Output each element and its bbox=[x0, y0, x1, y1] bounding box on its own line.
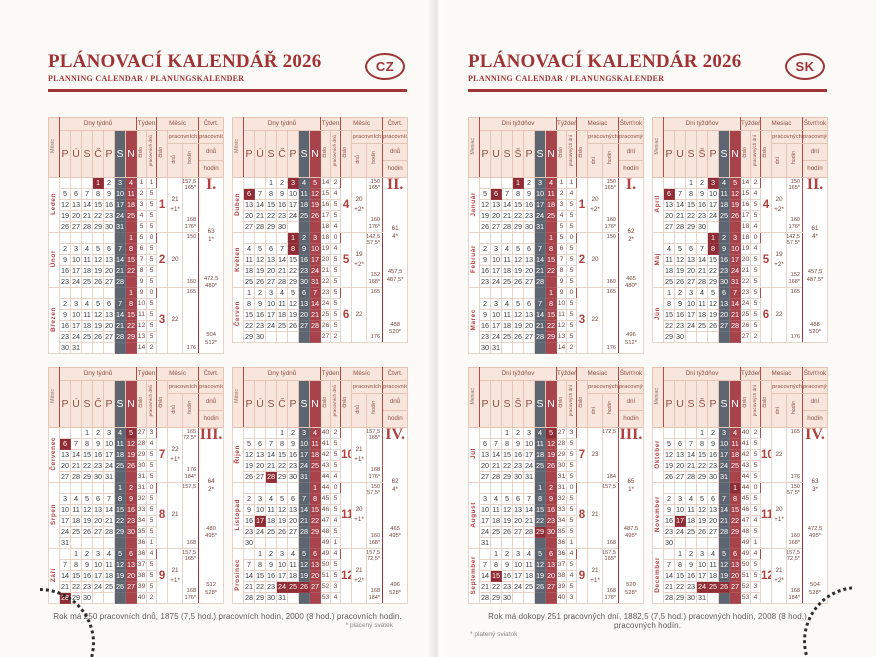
month-workdays: 21+1* bbox=[168, 548, 183, 603]
day-cell bbox=[104, 537, 115, 548]
day-cell bbox=[502, 342, 513, 353]
week-number: 47 bbox=[741, 515, 751, 526]
day-cell: 3 bbox=[491, 298, 502, 309]
day-cell bbox=[730, 221, 741, 232]
day-cell: 31 bbox=[535, 221, 546, 232]
day-letter-5: S bbox=[719, 130, 730, 177]
month-workdays: 21+1* bbox=[588, 548, 603, 603]
day-cell: 27 bbox=[93, 526, 104, 537]
day-cell: 14 bbox=[115, 309, 126, 320]
day-cell: 29 bbox=[491, 592, 502, 603]
day-cell bbox=[288, 331, 299, 342]
week-workdays: 5 bbox=[567, 471, 577, 482]
day-cell: 9 bbox=[502, 559, 513, 570]
month-number-label: číslo bbox=[577, 130, 588, 177]
quarter-days-label: dnů bbox=[383, 393, 408, 410]
day-cell bbox=[524, 287, 535, 298]
day-letter-2: S bbox=[82, 130, 93, 177]
day-cell bbox=[82, 177, 93, 188]
quarter-label: IV. bbox=[803, 430, 827, 440]
day-cell: 17 bbox=[71, 265, 82, 276]
day-cell: 12 bbox=[730, 188, 741, 199]
week-workdays: 1 bbox=[567, 177, 577, 188]
week-workdays: 5 bbox=[331, 559, 341, 570]
month-number: 3 bbox=[577, 287, 588, 353]
week-workdays: 1 bbox=[147, 177, 157, 188]
day-cell: 21 bbox=[675, 210, 686, 221]
week-workdays: 5 bbox=[567, 493, 577, 504]
day-cell: 5 bbox=[546, 427, 557, 438]
day-cell: 22 bbox=[255, 581, 266, 592]
day-cell: 16 bbox=[60, 320, 71, 331]
week-workdays-label: pracovných dní bbox=[567, 130, 577, 177]
day-cell: 17 bbox=[491, 265, 502, 276]
day-cell: 18 bbox=[491, 515, 502, 526]
day-cell: 5 bbox=[244, 438, 255, 449]
day-cell: 20 bbox=[675, 460, 686, 471]
day-cell: 3 bbox=[535, 177, 546, 188]
quarter-hours-8: 504512* bbox=[199, 332, 223, 347]
month-name: November bbox=[653, 482, 664, 548]
day-cell: 30 bbox=[93, 471, 104, 482]
day-cell: 25 bbox=[719, 210, 730, 221]
week-workdays: 5 bbox=[751, 504, 761, 515]
quarter-label: II. bbox=[803, 180, 827, 190]
day-cell: 2 bbox=[60, 298, 71, 309]
day-cell: 15 bbox=[535, 504, 546, 515]
month-header: Měsíc bbox=[341, 367, 383, 380]
day-cell: 12 bbox=[82, 504, 93, 515]
week-number: 40 bbox=[741, 427, 751, 438]
month-days-label: dnů bbox=[352, 143, 367, 177]
day-cell: 2 bbox=[719, 232, 730, 243]
day-cell: 17 bbox=[719, 449, 730, 460]
day-cell: 12 bbox=[115, 559, 126, 570]
day-cell: 23 bbox=[104, 210, 115, 221]
day-cell: 21 bbox=[719, 515, 730, 526]
day-cell: 13 bbox=[480, 449, 491, 460]
day-letter-6: N bbox=[730, 380, 741, 427]
month-workdays: 20+1* bbox=[352, 482, 367, 548]
month-hours: 157,5165*168176* bbox=[367, 427, 383, 482]
day-cell: 23 bbox=[266, 581, 277, 592]
day-cell: 14 bbox=[480, 570, 491, 581]
day-cell bbox=[255, 177, 266, 188]
month-workdays: 22 bbox=[352, 287, 367, 342]
day-cell: 9 bbox=[244, 504, 255, 515]
week-workdays: 5 bbox=[331, 298, 341, 309]
quarter-working-label: pracovních bbox=[383, 380, 408, 393]
day-cell: 2 bbox=[675, 287, 686, 298]
day-cell: 24 bbox=[491, 276, 502, 287]
day-cell: 7 bbox=[697, 243, 708, 254]
day-cell bbox=[480, 482, 491, 493]
week-workdays: 5 bbox=[147, 504, 157, 515]
day-cell: 26 bbox=[126, 460, 137, 471]
day-cell: 9 bbox=[708, 438, 719, 449]
week-number: 26 bbox=[321, 320, 331, 331]
day-cell: 6 bbox=[266, 243, 277, 254]
week-workdays-label: pracovných dní bbox=[751, 130, 761, 177]
week-workdays: 5 bbox=[751, 276, 761, 287]
week-workdays: 5 bbox=[147, 515, 157, 526]
day-cell: 21 bbox=[266, 460, 277, 471]
week-number: 49 bbox=[741, 548, 751, 559]
week-number: 35 bbox=[557, 526, 567, 537]
day-cell: 24 bbox=[310, 265, 321, 276]
day-cell: 2 bbox=[686, 548, 697, 559]
day-letter-4: P bbox=[104, 130, 115, 177]
day-cell: 7 bbox=[491, 438, 502, 449]
week-workdays: 5 bbox=[751, 298, 761, 309]
quarter-hours-8: 496528* bbox=[383, 582, 407, 597]
day-cell bbox=[299, 482, 310, 493]
day-cell: 27 bbox=[71, 221, 82, 232]
day-cell: 29 bbox=[115, 526, 126, 537]
week-number: 32 bbox=[137, 493, 147, 504]
day-cell: 17 bbox=[675, 515, 686, 526]
day-cell: 26 bbox=[502, 526, 513, 537]
day-cell: 26 bbox=[535, 581, 546, 592]
month-number: 1 bbox=[577, 177, 588, 232]
week-workdays: 2 bbox=[331, 331, 341, 342]
week-workdays: 4 bbox=[751, 515, 761, 526]
week-workdays: 4 bbox=[147, 548, 157, 559]
week-workdays: 5 bbox=[751, 471, 761, 482]
week-number: 14 bbox=[557, 342, 567, 353]
day-cell: 9 bbox=[664, 504, 675, 515]
day-cell bbox=[535, 287, 546, 298]
day-cell: 31 bbox=[524, 471, 535, 482]
day-cell: 8 bbox=[93, 188, 104, 199]
day-cell: 11 bbox=[299, 188, 310, 199]
quarter-summary: I.631*472,5480*504512* bbox=[199, 177, 224, 353]
day-cell: 18 bbox=[82, 320, 93, 331]
day-cell: 18 bbox=[104, 570, 115, 581]
day-cell: 15 bbox=[288, 254, 299, 265]
day-cell: 24 bbox=[115, 210, 126, 221]
day-cell: 24 bbox=[277, 581, 288, 592]
day-cell: 3 bbox=[71, 243, 82, 254]
day-cell: 1 bbox=[277, 427, 288, 438]
week-number: 5 bbox=[557, 232, 567, 243]
week-workdays: 5 bbox=[147, 276, 157, 287]
day-cell: 19 bbox=[730, 199, 741, 210]
day-cell: 17 bbox=[266, 309, 277, 320]
day-cell: 13 bbox=[71, 199, 82, 210]
country-badge-cz: CZ bbox=[365, 53, 405, 80]
month-number: 8 bbox=[577, 482, 588, 548]
weekdays-header: Dny týdnů bbox=[244, 367, 321, 380]
day-cell bbox=[719, 331, 730, 342]
day-cell: 6 bbox=[730, 548, 741, 559]
week-workdays: 4 bbox=[751, 243, 761, 254]
week-number: 22 bbox=[321, 276, 331, 287]
day-cell bbox=[299, 592, 310, 603]
day-cell: 20 bbox=[546, 570, 557, 581]
day-cell: 22 bbox=[502, 460, 513, 471]
day-cell: 25 bbox=[82, 276, 93, 287]
title-block: PLÁNOVACÍ KALENDÁR 2026 PLANNING CALENDA… bbox=[468, 52, 827, 84]
month-name: September bbox=[469, 548, 480, 603]
day-cell: 13 bbox=[299, 298, 310, 309]
day-cell: 15 bbox=[546, 309, 557, 320]
week-number: 45 bbox=[741, 493, 751, 504]
month-workdays: 23 bbox=[588, 427, 603, 482]
day-letter-1: U bbox=[491, 380, 502, 427]
day-letter-5: S bbox=[719, 380, 730, 427]
day-cell: 25 bbox=[82, 331, 93, 342]
day-cell: 8 bbox=[115, 493, 126, 504]
week-number: 31 bbox=[557, 471, 567, 482]
week-number: 39 bbox=[557, 581, 567, 592]
day-cell: 6 bbox=[524, 298, 535, 309]
day-cell: 30 bbox=[277, 221, 288, 232]
week-workdays: 3 bbox=[147, 427, 157, 438]
week-number-label: číslo bbox=[137, 380, 147, 427]
weekdays-header: Dny týdnů bbox=[60, 367, 137, 380]
month-hours: 150157,5*160168* bbox=[787, 482, 803, 548]
week-header: Týden bbox=[137, 117, 157, 130]
day-cell: 20 bbox=[491, 210, 502, 221]
week-number: 18 bbox=[741, 221, 751, 232]
day-cell: 18 bbox=[502, 320, 513, 331]
day-cell bbox=[277, 232, 288, 243]
day-cell: 18 bbox=[115, 449, 126, 460]
week-workdays: 5 bbox=[567, 210, 577, 221]
week-workdays: 5 bbox=[147, 526, 157, 537]
day-cell: 24 bbox=[299, 460, 310, 471]
day-cell: 13 bbox=[104, 309, 115, 320]
footer-note: * platený sviatok bbox=[468, 631, 827, 638]
day-cell: 22 bbox=[310, 515, 321, 526]
day-letter-5: S bbox=[115, 130, 126, 177]
week-number: 10 bbox=[557, 298, 567, 309]
week-number: 9 bbox=[557, 287, 567, 298]
month-workdays: 20+2* bbox=[772, 177, 787, 232]
day-cell: 31 bbox=[115, 221, 126, 232]
day-cell: 11 bbox=[524, 559, 535, 570]
day-cell: 10 bbox=[535, 188, 546, 199]
week-workdays: 4 bbox=[751, 548, 761, 559]
day-cell: 20 bbox=[104, 265, 115, 276]
week-workdays: 5 bbox=[751, 287, 761, 298]
day-cell bbox=[491, 177, 502, 188]
day-letter-0: P bbox=[664, 380, 675, 427]
day-cell: 21 bbox=[491, 460, 502, 471]
day-cell: 23 bbox=[546, 515, 557, 526]
day-cell: 7 bbox=[115, 243, 126, 254]
day-cell: 13 bbox=[513, 504, 524, 515]
quarter-grid-sk: MesiacDni týždňovTýždeňMesiacŠtvrťrokPUS… bbox=[468, 117, 827, 604]
week-workdays: 5 bbox=[567, 526, 577, 537]
day-cell: 15 bbox=[82, 449, 93, 460]
day-cell: 9 bbox=[480, 254, 491, 265]
quarter-summary: IV.633*472,5495*504528* bbox=[803, 427, 828, 603]
day-cell: 6 bbox=[71, 188, 82, 199]
day-cell: 14 bbox=[60, 570, 71, 581]
day-cell: 25 bbox=[115, 460, 126, 471]
day-cell: 28 bbox=[535, 331, 546, 342]
day-cell bbox=[115, 287, 126, 298]
day-cell: 13 bbox=[244, 199, 255, 210]
day-cell: 1 bbox=[546, 232, 557, 243]
week-number: 21 bbox=[741, 265, 751, 276]
day-cell: 4 bbox=[491, 493, 502, 504]
day-cell: 4 bbox=[697, 287, 708, 298]
day-cell: 26 bbox=[82, 526, 93, 537]
week-number: 16 bbox=[321, 199, 331, 210]
day-cell: 16 bbox=[244, 515, 255, 526]
day-cell: 30 bbox=[524, 221, 535, 232]
week-number: 4 bbox=[137, 210, 147, 221]
day-cell: 26 bbox=[60, 221, 71, 232]
day-cell: 2 bbox=[255, 287, 266, 298]
day-cell: 20 bbox=[513, 515, 524, 526]
day-cell: 3 bbox=[513, 548, 524, 559]
day-cell: 7 bbox=[535, 243, 546, 254]
footer-summary: Rok má dokopy 251 pracovných dní, 1882,5… bbox=[468, 612, 827, 630]
week-number: 17 bbox=[321, 210, 331, 221]
day-cell: 7 bbox=[104, 493, 115, 504]
week-workdays: 5 bbox=[147, 570, 157, 581]
day-cell: 24 bbox=[675, 526, 686, 537]
quarter-summary: IV.624*465495*496528* bbox=[383, 427, 408, 603]
month-number-label: číslo bbox=[577, 380, 588, 427]
week-header: Týždeň bbox=[557, 367, 577, 380]
day-cell bbox=[697, 482, 708, 493]
day-cell bbox=[546, 276, 557, 287]
day-cell: 20 bbox=[244, 210, 255, 221]
day-cell: 17 bbox=[115, 199, 126, 210]
day-letter-2: S bbox=[266, 130, 277, 177]
day-cell bbox=[244, 548, 255, 559]
week-workdays: 1 bbox=[567, 537, 577, 548]
month-header: Mesiac bbox=[577, 117, 619, 130]
day-cell: 6 bbox=[546, 548, 557, 559]
day-cell: 17 bbox=[491, 320, 502, 331]
day-cell: 26 bbox=[513, 331, 524, 342]
day-cell: 17 bbox=[93, 570, 104, 581]
day-cell: 1 bbox=[255, 548, 266, 559]
day-cell: 3 bbox=[104, 427, 115, 438]
week-workdays: 5 bbox=[567, 320, 577, 331]
day-cell bbox=[104, 342, 115, 353]
week-workdays: 4 bbox=[331, 188, 341, 199]
day-cell bbox=[244, 482, 255, 493]
month-name: Prosinec bbox=[233, 548, 244, 603]
day-cell: 4 bbox=[288, 548, 299, 559]
day-cell: 1 bbox=[686, 177, 697, 188]
day-cell: 18 bbox=[708, 570, 719, 581]
day-cell: 10 bbox=[480, 504, 491, 515]
day-cell: 13 bbox=[524, 309, 535, 320]
week-number: 28 bbox=[137, 438, 147, 449]
page-sk: PLÁNOVACÍ KALENDÁR 2026 PLANNING CALENDA… bbox=[438, 0, 876, 657]
day-letter-2: S bbox=[502, 380, 513, 427]
day-cell: 15 bbox=[310, 504, 321, 515]
day-cell: 16 bbox=[524, 199, 535, 210]
quarter-table-III: MesiacDni týždňovTýždeňMesiacŠtvrťrokPUS… bbox=[468, 367, 644, 604]
day-cell: 11 bbox=[686, 504, 697, 515]
day-cell: 23 bbox=[244, 526, 255, 537]
day-cell: 25 bbox=[730, 460, 741, 471]
day-cell: 3 bbox=[480, 493, 491, 504]
week-number: 48 bbox=[321, 526, 331, 537]
month-number: 9 bbox=[577, 548, 588, 603]
day-cell: 12 bbox=[299, 559, 310, 570]
day-cell: 10 bbox=[686, 298, 697, 309]
day-cell: 28 bbox=[491, 471, 502, 482]
month-name: Január bbox=[469, 177, 480, 232]
day-cell: 1 bbox=[126, 287, 137, 298]
day-cell: 11 bbox=[104, 559, 115, 570]
day-cell: 4 bbox=[244, 243, 255, 254]
week-workdays: 5 bbox=[331, 504, 341, 515]
week-number: 14 bbox=[741, 177, 751, 188]
day-cell bbox=[491, 232, 502, 243]
day-cell: 19 bbox=[513, 265, 524, 276]
month-workdays: 22 bbox=[168, 287, 183, 353]
week-number: 49 bbox=[321, 537, 331, 548]
day-cell: 19 bbox=[299, 570, 310, 581]
day-cell bbox=[708, 537, 719, 548]
day-cell: 7 bbox=[82, 188, 93, 199]
day-cell bbox=[524, 342, 535, 353]
day-cell: 1 bbox=[126, 232, 137, 243]
month-name: Červenec bbox=[49, 427, 60, 482]
week-workdays: 5 bbox=[147, 449, 157, 460]
day-cell: 28 bbox=[502, 221, 513, 232]
day-cell: 11 bbox=[277, 298, 288, 309]
month-number: 8 bbox=[157, 482, 168, 548]
day-cell: 19 bbox=[502, 515, 513, 526]
month-hours-label: hodin bbox=[183, 143, 199, 177]
header-rule bbox=[48, 89, 407, 92]
day-cell bbox=[491, 537, 502, 548]
day-cell bbox=[535, 232, 546, 243]
month-workdays: 21 bbox=[588, 482, 603, 548]
day-cell: 23 bbox=[686, 581, 697, 592]
day-cell bbox=[82, 537, 93, 548]
month-name: Október bbox=[653, 427, 664, 482]
quarter-hours-75: 465480* bbox=[619, 276, 643, 291]
day-cell: 22 bbox=[126, 265, 137, 276]
day-cell: 8 bbox=[255, 559, 266, 570]
day-cell: 18 bbox=[277, 309, 288, 320]
day-cell: 2 bbox=[266, 548, 277, 559]
day-cell: 16 bbox=[502, 570, 513, 581]
day-cell: 4 bbox=[686, 493, 697, 504]
month-number: 3 bbox=[157, 287, 168, 353]
day-cell: 13 bbox=[126, 559, 137, 570]
day-cell: 2 bbox=[277, 177, 288, 188]
day-cell: 30 bbox=[104, 221, 115, 232]
quarter-label: II. bbox=[383, 180, 407, 190]
month-number-label: číslo bbox=[157, 130, 168, 177]
day-cell bbox=[719, 592, 730, 603]
day-cell: 18 bbox=[126, 199, 137, 210]
day-cell bbox=[115, 232, 126, 243]
week-number: 41 bbox=[741, 438, 751, 449]
day-cell: 17 bbox=[288, 199, 299, 210]
day-cell: 10 bbox=[255, 504, 266, 515]
week-workdays: 2 bbox=[751, 427, 761, 438]
week-number: 7 bbox=[557, 254, 567, 265]
day-cell: 9 bbox=[524, 188, 535, 199]
month-name: Únor bbox=[49, 232, 60, 287]
day-cell: 21 bbox=[255, 210, 266, 221]
